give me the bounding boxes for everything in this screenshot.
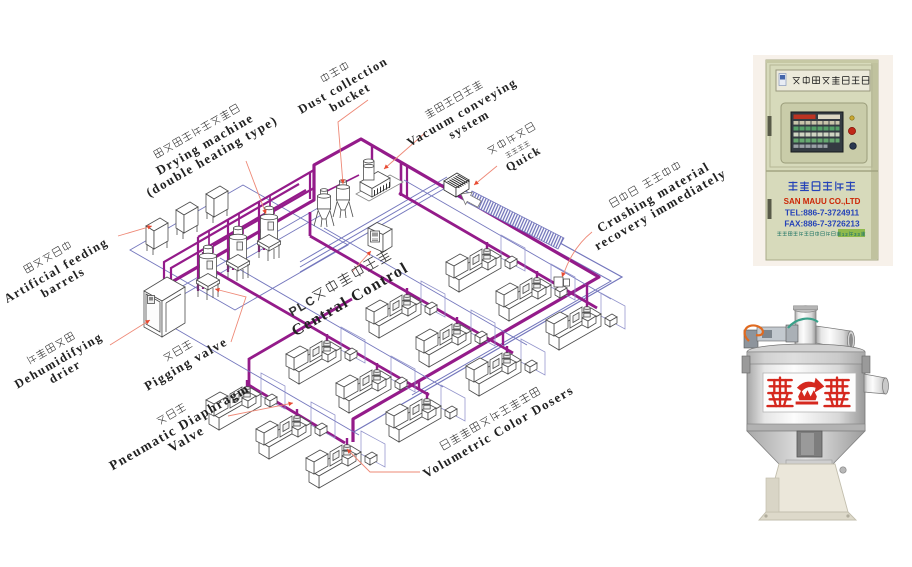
svg-text:TEL:886-7-3724911: TEL:886-7-3724911	[785, 208, 860, 218]
svg-text:FAX:886-7-3726213: FAX:886-7-3726213	[784, 219, 860, 229]
svg-text:SAN MAUU CO.,LTD: SAN MAUU CO.,LTD	[784, 197, 861, 206]
